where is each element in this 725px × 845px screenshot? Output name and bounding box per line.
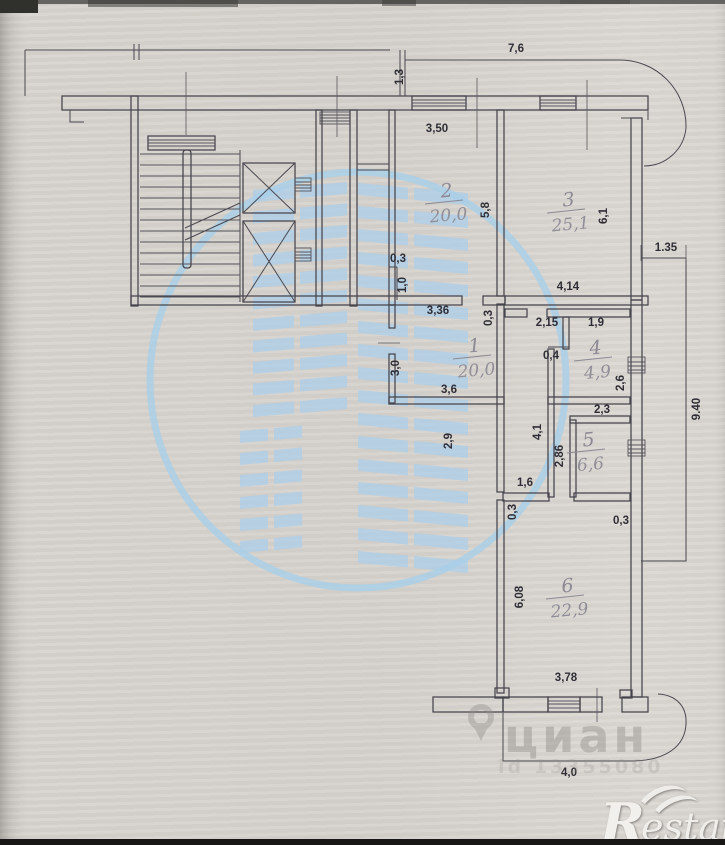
cian-building-stripe bbox=[253, 402, 294, 418]
cian-building-stripe bbox=[414, 234, 468, 251]
cian-building-stripe bbox=[300, 268, 347, 284]
cian-building-stripe bbox=[300, 397, 347, 413]
dim-label: 5,8 bbox=[480, 201, 492, 218]
dim-label: 2,15 bbox=[536, 317, 559, 329]
cian-building-stripe bbox=[253, 251, 294, 267]
cian-building-stripe bbox=[414, 326, 468, 343]
room-label: 44,9 bbox=[574, 337, 612, 385]
cian-building-stripe bbox=[414, 464, 468, 481]
dim-label: 1,6 bbox=[517, 477, 533, 489]
room-area: 22,9 bbox=[549, 599, 590, 622]
floor-plan-canvas: 7,61,33,505,86,11.350,31,04,143,360,32,1… bbox=[0, 0, 725, 845]
cian-building-stripe bbox=[240, 429, 268, 444]
loggia-outline bbox=[641, 245, 686, 561]
room-number: 4 bbox=[587, 337, 602, 360]
cian-building-stripe bbox=[240, 473, 268, 488]
cian-building-stripe bbox=[300, 376, 347, 392]
dim-label: 2,6 bbox=[615, 375, 627, 391]
cian-building-stripe bbox=[253, 273, 294, 289]
cian-building-stripe bbox=[253, 359, 294, 375]
room-area: 25,1 bbox=[550, 213, 590, 236]
dim-label: 3,78 bbox=[555, 672, 578, 684]
cian-building-stripe bbox=[358, 206, 408, 223]
cian-building-stripe bbox=[414, 487, 468, 504]
room-label: 622,9 bbox=[546, 575, 589, 623]
dim-label: 4,14 bbox=[557, 281, 580, 293]
window bbox=[412, 96, 466, 110]
dim-label: 3,36 bbox=[427, 305, 449, 317]
room-label: 56,6 bbox=[567, 429, 605, 476]
dim-label: 0,3 bbox=[613, 515, 629, 527]
dim-label: 6,1 bbox=[598, 207, 610, 224]
cian-building-stripe bbox=[300, 333, 347, 349]
floor-plan bbox=[25, 44, 686, 761]
cian-building-stripe bbox=[274, 470, 302, 485]
dim-label: 1.35 bbox=[655, 242, 678, 254]
cian-building-stripe bbox=[240, 517, 268, 532]
cian-building-stripe bbox=[240, 451, 268, 466]
bay-outline bbox=[405, 60, 686, 166]
cian-building-stripe bbox=[300, 290, 347, 306]
cian-building-stripe bbox=[274, 514, 302, 529]
cian-building-stripe bbox=[300, 311, 347, 327]
vent-shaft-hatch bbox=[320, 112, 350, 124]
window bbox=[540, 96, 576, 110]
cian-building-stripe bbox=[358, 344, 408, 361]
dim-label: 1,9 bbox=[588, 317, 604, 329]
cian-building-stripe bbox=[358, 413, 408, 430]
cian-building-stripe bbox=[240, 495, 268, 510]
restate-r-text: R bbox=[598, 791, 645, 845]
cian-building-stripe bbox=[414, 418, 468, 435]
cian-building-icon bbox=[240, 182, 468, 573]
room-number: 5 bbox=[581, 429, 595, 452]
dim-label: 2,86 bbox=[554, 445, 566, 467]
scanned-floor-plan-page: 7,61,33,505,86,11.350,31,04,143,360,32,1… bbox=[0, 0, 725, 845]
cian-building-stripe bbox=[274, 426, 302, 441]
cian-id-text: id 13355080 bbox=[498, 756, 664, 778]
dim-label: 0,4 bbox=[543, 350, 560, 362]
cian-building-stripe bbox=[300, 247, 347, 263]
cian-building-stripe bbox=[358, 505, 408, 522]
room-number: 1 bbox=[467, 335, 481, 358]
cian-building-stripe bbox=[253, 316, 294, 332]
room-area: 4,9 bbox=[582, 362, 612, 384]
dim-label: 3,0 bbox=[390, 360, 402, 376]
cian-building-stripe bbox=[358, 551, 408, 568]
cian-building-stripe bbox=[253, 380, 294, 396]
room-label: 325,1 bbox=[547, 189, 590, 237]
cian-building-stripe bbox=[358, 229, 408, 246]
dim-label: 4,1 bbox=[532, 423, 544, 440]
cian-building-stripe bbox=[414, 441, 468, 458]
cian-building-stripe bbox=[358, 528, 408, 545]
cian-building-stripe bbox=[253, 187, 294, 203]
cian-building-stripe bbox=[358, 482, 408, 499]
dim-label: 2,3 bbox=[594, 404, 610, 416]
cian-building-stripe bbox=[274, 492, 302, 507]
cian-building-stripe bbox=[358, 298, 408, 315]
dimension-labels-layer: 7,61,33,505,86,11.350,31,04,143,360,32,1… bbox=[390, 43, 703, 779]
room-number: 2 bbox=[438, 180, 453, 203]
cian-building-stripe bbox=[358, 436, 408, 453]
cian-building-stripe bbox=[414, 533, 468, 550]
dim-label: 6,08 bbox=[514, 585, 526, 608]
stairs bbox=[140, 150, 240, 302]
room-number: 3 bbox=[561, 189, 575, 212]
dim-label: 1,3 bbox=[394, 69, 406, 85]
cian-building-stripe bbox=[274, 536, 302, 551]
dim-label: 1,0 bbox=[397, 277, 409, 293]
cian-building-stripe bbox=[274, 448, 302, 463]
room-number: 6 bbox=[560, 575, 574, 598]
cian-building-stripe bbox=[358, 459, 408, 476]
room-area: 20,0 bbox=[428, 204, 469, 227]
room-area: 20,0 bbox=[456, 359, 497, 382]
dim-label: 3,50 bbox=[426, 123, 448, 135]
dim-label: 2,9 bbox=[443, 433, 455, 449]
cian-watermark: циан id 13355080 bbox=[471, 707, 664, 778]
cian-building-stripe bbox=[300, 225, 347, 241]
cian-building-stripe bbox=[358, 183, 408, 200]
core-wall bbox=[350, 110, 357, 306]
entry-door-hatch bbox=[148, 136, 215, 150]
cian-building-stripe bbox=[253, 337, 294, 353]
exterior-top-wall bbox=[62, 96, 648, 122]
cian-building-stripe bbox=[240, 539, 268, 554]
dim-label: 0,3 bbox=[483, 310, 495, 326]
room-area: 6,6 bbox=[576, 454, 605, 476]
dim-label: 9.40 bbox=[691, 398, 703, 420]
restate-logo: R estate bbox=[598, 786, 725, 845]
cian-building-stripe bbox=[358, 321, 408, 338]
dim-label: 0,3 bbox=[390, 253, 406, 265]
dim-label: 3,6 bbox=[441, 384, 457, 396]
cian-building-stripe bbox=[414, 280, 468, 297]
cian-building-stripe bbox=[300, 354, 347, 370]
dim-label: 0,3 bbox=[507, 504, 519, 520]
cian-building-stripe bbox=[300, 182, 347, 198]
entry-canopy bbox=[25, 44, 405, 96]
cian-building-stripe bbox=[300, 204, 347, 220]
cian-building-stripe bbox=[414, 510, 468, 527]
dim-label: 7,6 bbox=[508, 43, 524, 55]
cian-building-stripe bbox=[414, 257, 468, 274]
cian-brand-text: циан bbox=[504, 709, 649, 763]
